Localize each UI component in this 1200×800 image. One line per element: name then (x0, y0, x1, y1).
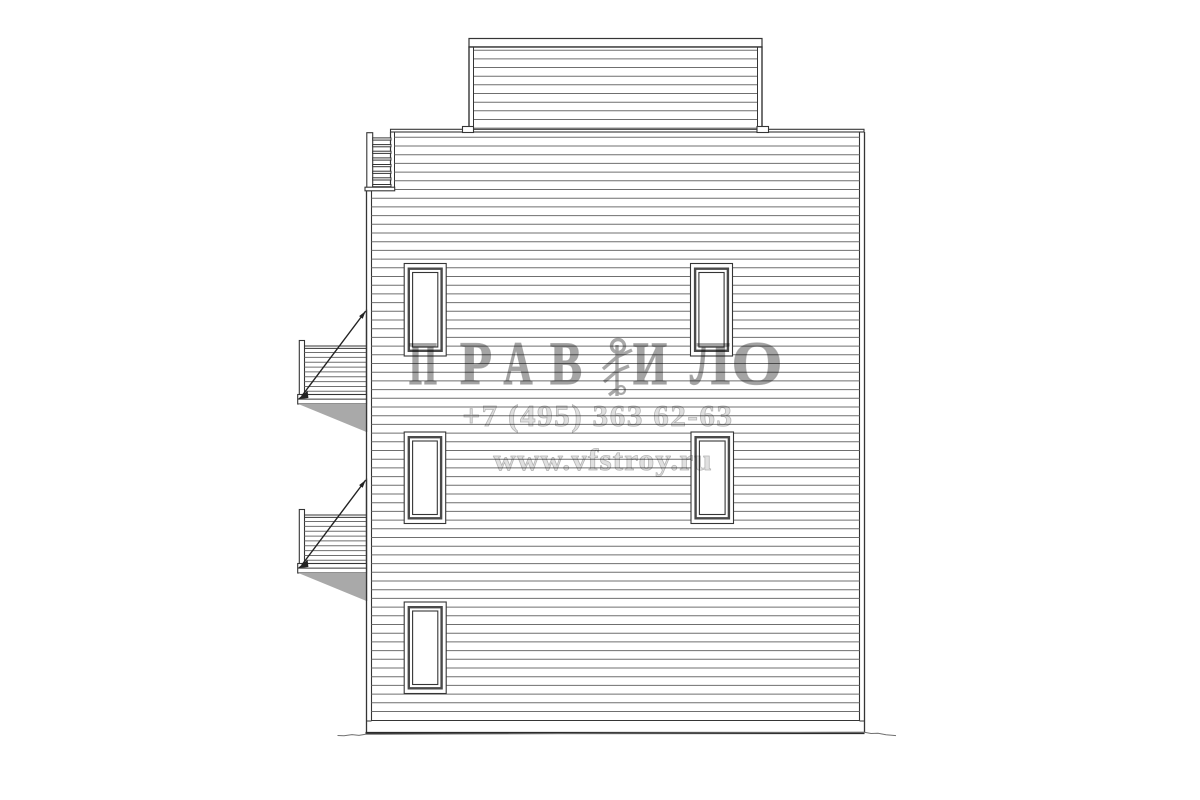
svg-text:О: О (732, 331, 783, 398)
svg-text:Р: Р (460, 331, 492, 398)
svg-text:В: В (550, 331, 582, 398)
svg-text:+7 (495) 363 62-63: +7 (495) 363 62-63 (462, 398, 733, 433)
svg-text:П: П (409, 331, 437, 398)
svg-text:Л: Л (690, 331, 730, 398)
svg-text:И: И (633, 331, 667, 398)
svg-text:www.vfstroy.ru: www.vfstroy.ru (493, 442, 712, 477)
svg-text:А: А (504, 331, 533, 398)
